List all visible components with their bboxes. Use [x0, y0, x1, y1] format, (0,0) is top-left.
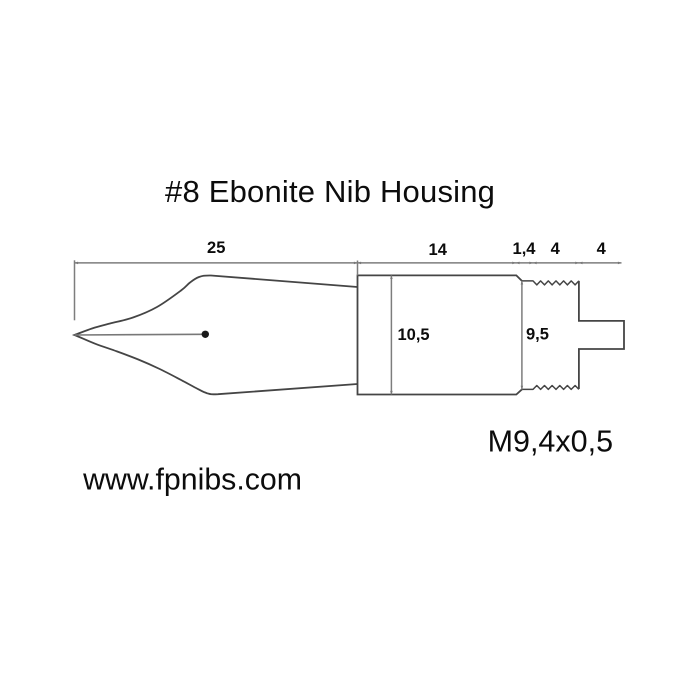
svg-text:9,5: 9,5 — [526, 326, 549, 344]
svg-text:25: 25 — [207, 239, 225, 257]
svg-text:M9,4x0,5: M9,4x0,5 — [488, 425, 613, 459]
svg-text:1,4: 1,4 — [513, 240, 537, 258]
svg-text:14: 14 — [429, 241, 448, 259]
svg-text:4: 4 — [551, 240, 561, 258]
svg-text:#8 Ebonite Nib Housing: #8 Ebonite Nib Housing — [165, 174, 495, 209]
svg-text:www.fpnibs.com: www.fpnibs.com — [82, 464, 302, 497]
svg-text:10,5: 10,5 — [398, 326, 430, 344]
svg-text:4: 4 — [597, 240, 607, 258]
